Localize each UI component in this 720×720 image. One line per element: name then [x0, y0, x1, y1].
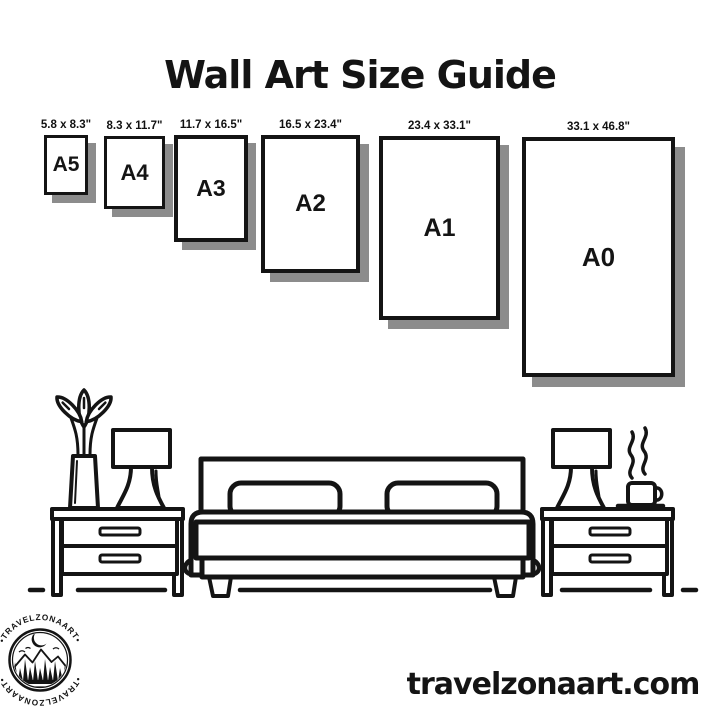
size-dimensions-label: 11.7 x 16.5" — [180, 119, 242, 131]
size-dimensions-label: 33.1 x 46.8" — [567, 121, 630, 133]
bed-base — [202, 558, 523, 577]
size-frame-a1: 23.4 x 33.1" A1 — [379, 136, 500, 320]
brand-logo-badge: •TRAVELZONAART• •TRAVELZONAART• — [0, 612, 88, 708]
table-lamp-right-icon — [553, 430, 610, 508]
wall-art-size-guide-poster: Wall Art Size Guide 5.8 x 8.3" A5 8.3 x … — [0, 0, 720, 720]
website-url: travelzonaart.com — [407, 667, 700, 702]
bed-icon — [185, 459, 539, 596]
paper-frame: A1 — [379, 136, 500, 320]
drawer-handle — [100, 528, 140, 535]
size-dimensions-label: 5.8 x 8.3" — [41, 119, 91, 131]
paper-code: A3 — [196, 175, 225, 202]
size-dimensions-label: 23.4 x 33.1" — [408, 120, 471, 132]
plant-vase-icon — [53, 390, 114, 508]
size-frame-a2: 16.5 x 23.4" A2 — [261, 135, 360, 273]
size-frame-a4: 8.3 x 11.7" A4 — [104, 136, 165, 209]
paper-code: A4 — [120, 160, 148, 186]
paper-code: A2 — [295, 190, 326, 218]
table-lamp-left-icon — [113, 430, 170, 508]
drawer-handle — [590, 555, 630, 562]
page-title: Wall Art Size Guide — [0, 53, 720, 97]
nightstand-left-icon — [52, 509, 183, 595]
size-frame-a5: 5.8 x 8.3" A5 — [44, 135, 88, 195]
size-dimensions-label: 8.3 x 11.7" — [107, 120, 163, 132]
paper-frame: A0 — [522, 137, 675, 377]
paper-code: A1 — [424, 214, 456, 243]
drawer-handle — [100, 555, 140, 562]
coffee-cup-icon — [618, 428, 663, 506]
mattress — [196, 522, 529, 558]
steam — [629, 432, 633, 478]
size-dimensions-label: 16.5 x 23.4" — [279, 119, 342, 131]
nightstand-right-icon — [542, 509, 673, 595]
bedroom-illustration — [25, 385, 705, 600]
paper-frame: A5 — [44, 135, 88, 195]
size-frame-a3: 11.7 x 16.5" A3 — [174, 135, 248, 242]
drawer-handle — [590, 528, 630, 535]
paper-frame: A4 — [104, 136, 165, 209]
bed-leg-left — [209, 577, 231, 596]
paper-code: A0 — [582, 242, 615, 273]
paper-frame: A2 — [261, 135, 360, 273]
paper-frame: A3 — [174, 135, 248, 242]
steam — [642, 428, 646, 474]
paper-code: A5 — [53, 153, 80, 177]
size-frame-a0: 33.1 x 46.8" A0 — [522, 137, 675, 377]
bed-leg-right — [494, 577, 516, 596]
